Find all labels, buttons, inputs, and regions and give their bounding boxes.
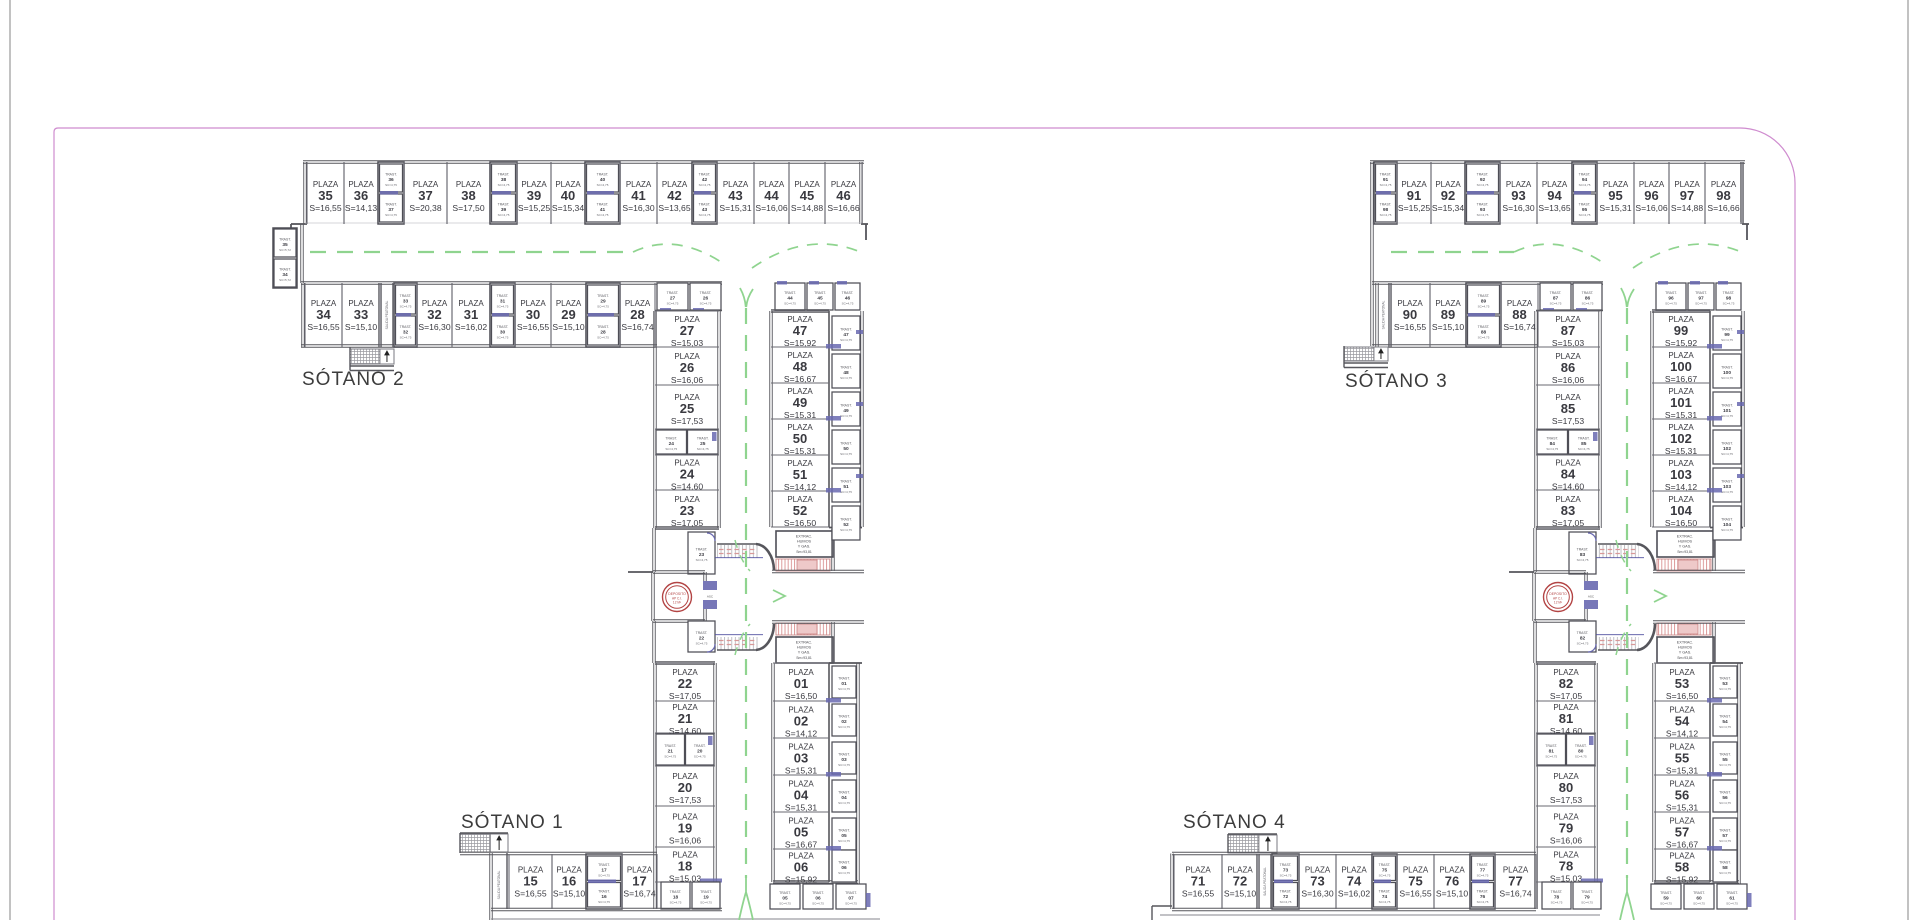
svg-text:76: 76: [1445, 874, 1459, 889]
svg-text:S=14,88: S=14,88: [791, 203, 823, 213]
svg-text:TRAST.: TRAST.: [1579, 203, 1591, 207]
svg-text:SC=4,75: SC=4,75: [840, 338, 852, 342]
svg-text:TRAST.: TRAST.: [598, 889, 610, 893]
svg-text:72: 72: [1233, 874, 1247, 889]
svg-text:S=16,55: S=16,55: [309, 203, 341, 213]
svg-text:SC=4,75: SC=4,75: [696, 642, 708, 646]
svg-text:86: 86: [1561, 360, 1575, 375]
svg-text:SC=5,72: SC=5,72: [279, 278, 291, 282]
svg-text:TRAST.: TRAST.: [694, 744, 706, 748]
svg-text:27: 27: [680, 323, 694, 338]
svg-text:S=15,10: S=15,10: [345, 322, 377, 332]
svg-text:S=16,55: S=16,55: [1394, 322, 1426, 332]
svg-text:SC=4,75: SC=4,75: [1477, 900, 1489, 904]
svg-text:104: 104: [1670, 503, 1692, 518]
svg-text:S=16,55: S=16,55: [1182, 889, 1214, 899]
svg-text:SC=4,75: SC=4,75: [1379, 900, 1391, 904]
svg-text:SC=4,75: SC=4,75: [1380, 213, 1392, 217]
svg-text:SC=4,75: SC=4,75: [598, 873, 610, 877]
svg-text:S=16,02: S=16,02: [455, 322, 487, 332]
svg-text:SC=4,75: SC=4,75: [1577, 642, 1589, 646]
svg-text:SC=4,75: SC=4,75: [779, 902, 791, 906]
svg-text:TRAST.: TRAST.: [699, 203, 711, 207]
svg-text:TRAST.: TRAST.: [1719, 861, 1731, 865]
svg-text:44: 44: [764, 188, 779, 203]
svg-text:SC=4,75: SC=4,75: [1721, 338, 1733, 342]
svg-text:S=15,31: S=15,31: [785, 803, 817, 813]
svg-text:30: 30: [526, 307, 540, 322]
svg-text:S=15,31: S=15,31: [1666, 803, 1698, 813]
svg-text:TRAST.: TRAST.: [1477, 203, 1489, 207]
svg-text:EXTRAC.: EXTRAC.: [1677, 535, 1693, 539]
svg-text:SC=4,75: SC=4,75: [1578, 447, 1590, 451]
svg-text:TRAST.: TRAST.: [667, 291, 679, 295]
svg-text:DEPOSITO: DEPOSITO: [668, 592, 686, 596]
svg-text:TRAST.: TRAST.: [385, 173, 397, 177]
svg-text:04: 04: [794, 788, 809, 803]
svg-text:S=16,30: S=16,30: [622, 203, 654, 213]
svg-text:94: 94: [1547, 188, 1562, 203]
svg-text:TRAST.: TRAST.: [1379, 863, 1391, 867]
svg-text:23: 23: [680, 503, 694, 518]
svg-text:TRAST.: TRAST.: [1478, 294, 1490, 298]
svg-text:S=15,10: S=15,10: [552, 322, 584, 332]
svg-text:S=20,38: S=20,38: [409, 203, 441, 213]
svg-text:SC=4,75: SC=4,75: [1721, 528, 1733, 532]
svg-text:SC=4,75: SC=4,75: [699, 183, 711, 187]
svg-text:SC=4,75: SC=4,75: [840, 528, 852, 532]
svg-text:77: 77: [1508, 874, 1522, 889]
svg-text:ASC: ASC: [707, 595, 714, 599]
svg-text:45: 45: [800, 188, 814, 203]
svg-text:S=15,31: S=15,31: [1599, 203, 1631, 213]
svg-text:S=17,53: S=17,53: [671, 416, 703, 426]
svg-text:24: 24: [680, 467, 695, 482]
svg-text:54: 54: [1675, 714, 1690, 729]
svg-text:17: 17: [632, 874, 646, 889]
svg-text:SC=4,75: SC=4,75: [696, 558, 708, 562]
svg-text:85: 85: [1561, 401, 1575, 416]
svg-text:Y GAS.: Y GAS.: [1679, 651, 1692, 655]
svg-text:SC=4,75: SC=4,75: [838, 763, 850, 767]
svg-text:S=16,67: S=16,67: [785, 840, 817, 850]
svg-text:TRAST.: TRAST.: [840, 366, 852, 370]
svg-text:TRAST.: TRAST.: [838, 829, 850, 833]
svg-text:SC=4,75: SC=4,75: [700, 302, 712, 306]
svg-text:Sm=93,81: Sm=93,81: [1677, 656, 1693, 660]
svg-text:79: 79: [1559, 821, 1573, 836]
svg-text:SC=4,75: SC=4,75: [1719, 839, 1731, 843]
svg-text:SC=4,75: SC=4,75: [1477, 183, 1489, 187]
svg-text:TRAST.: TRAST.: [845, 891, 857, 895]
svg-text:S=16,06: S=16,06: [669, 836, 701, 846]
svg-text:SÓTANO 1: SÓTANO 1: [461, 811, 564, 833]
svg-text:SC=4,75: SC=4,75: [1693, 902, 1705, 906]
svg-text:TRAST.: TRAST.: [1379, 889, 1391, 893]
svg-text:12 M³: 12 M³: [1554, 601, 1562, 605]
svg-text:S=15,25: S=15,25: [518, 203, 550, 213]
svg-text:82: 82: [1559, 676, 1573, 691]
svg-text:S=15,10: S=15,10: [1436, 889, 1468, 899]
svg-text:TRAST.: TRAST.: [597, 173, 609, 177]
svg-text:SC=4,75: SC=4,75: [1719, 725, 1731, 729]
svg-text:TRAST.: TRAST.: [700, 890, 712, 894]
svg-text:06: 06: [794, 860, 808, 875]
svg-text:SC=4,75: SC=4,75: [597, 213, 609, 217]
svg-text:TRAST.: TRAST.: [838, 753, 850, 757]
svg-text:S=16,06: S=16,06: [1552, 375, 1584, 385]
svg-text:S=16,67: S=16,67: [1666, 840, 1698, 850]
svg-text:TRAST.: TRAST.: [279, 238, 291, 242]
svg-text:TRAST.: TRAST.: [597, 325, 609, 329]
svg-text:89: 89: [1441, 307, 1455, 322]
svg-text:EXTRAC.: EXTRAC.: [1677, 641, 1693, 645]
svg-text:90: 90: [1403, 307, 1417, 322]
svg-text:TRAST.: TRAST.: [1721, 480, 1733, 484]
svg-text:SC=4,75: SC=4,75: [1575, 755, 1587, 759]
svg-text:S=17,05: S=17,05: [1550, 691, 1582, 701]
svg-text:43: 43: [728, 188, 742, 203]
svg-text:TRAST.: TRAST.: [1719, 791, 1731, 795]
svg-text:SC=5,72: SC=5,72: [279, 248, 291, 252]
svg-text:S=16,55: S=16,55: [517, 322, 549, 332]
svg-text:SALIDA PEATONAL: SALIDA PEATONAL: [1382, 300, 1386, 329]
svg-text:38: 38: [461, 188, 475, 203]
svg-text:S=16,50: S=16,50: [785, 691, 817, 701]
svg-text:22: 22: [678, 676, 692, 691]
svg-text:02: 02: [794, 714, 808, 729]
svg-text:80: 80: [1559, 780, 1573, 795]
svg-text:93: 93: [1511, 188, 1525, 203]
svg-text:S=15,34: S=15,34: [552, 203, 584, 213]
svg-text:S=16,30: S=16,30: [418, 322, 450, 332]
svg-text:S=15,31: S=15,31: [785, 766, 817, 776]
svg-text:78: 78: [1559, 859, 1573, 874]
svg-text:S=16,06: S=16,06: [1550, 836, 1582, 846]
svg-text:HUMOS: HUMOS: [1678, 646, 1693, 650]
svg-text:TRAST.: TRAST.: [700, 291, 712, 295]
svg-text:S=17,53: S=17,53: [669, 795, 701, 805]
svg-text:SC=4,75: SC=4,75: [1380, 183, 1392, 187]
svg-text:S=15,31: S=15,31: [1666, 766, 1698, 776]
svg-text:S=17,05: S=17,05: [671, 518, 703, 528]
svg-text:SC=4,75: SC=4,75: [1478, 305, 1490, 309]
svg-text:S=16,55: S=16,55: [1399, 889, 1431, 899]
svg-text:TRAST.: TRAST.: [784, 291, 796, 295]
svg-text:S=16,50: S=16,50: [784, 518, 816, 528]
svg-text:SALIDA PEATONAL: SALIDA PEATONAL: [1263, 867, 1267, 896]
svg-text:SC=4,75: SC=4,75: [842, 302, 854, 306]
svg-text:TRAST.: TRAST.: [279, 268, 291, 272]
svg-text:05: 05: [794, 825, 808, 840]
svg-text:87: 87: [1561, 323, 1575, 338]
svg-text:75: 75: [1408, 874, 1422, 889]
svg-text:TRAST.: TRAST.: [779, 891, 791, 895]
svg-text:SC=4,75: SC=4,75: [1477, 213, 1489, 217]
svg-text:S=14,88: S=14,88: [1671, 203, 1703, 213]
svg-text:35: 35: [318, 188, 332, 203]
svg-text:TRAST.: TRAST.: [697, 437, 709, 441]
svg-text:TRAST.: TRAST.: [1721, 518, 1733, 522]
svg-text:SC=4,75: SC=4,75: [838, 687, 850, 691]
svg-text:TRAST.: TRAST.: [1581, 890, 1593, 894]
svg-text:TRAST.: TRAST.: [1478, 325, 1490, 329]
svg-text:SC=4,75: SC=4,75: [667, 302, 679, 306]
svg-text:SC=4,75: SC=4,75: [597, 336, 609, 340]
svg-text:S=16,02: S=16,02: [1338, 889, 1370, 899]
svg-text:TRAST.: TRAST.: [1577, 631, 1589, 635]
svg-text:58: 58: [1675, 860, 1689, 875]
svg-text:SC=4,75: SC=4,75: [597, 305, 609, 309]
svg-text:TRAST.: TRAST.: [598, 863, 610, 867]
svg-text:TRAST.: TRAST.: [1695, 291, 1707, 295]
svg-text:81: 81: [1559, 711, 1573, 726]
svg-text:SC=4,75: SC=4,75: [1721, 414, 1733, 418]
svg-text:TRAST.: TRAST.: [670, 890, 682, 894]
svg-text:SÓTANO 4: SÓTANO 4: [1183, 811, 1286, 833]
svg-text:33: 33: [354, 307, 368, 322]
svg-text:S=16,06: S=16,06: [671, 375, 703, 385]
svg-text:SC=4,75: SC=4,75: [840, 452, 852, 456]
svg-text:Sm=93,81: Sm=93,81: [796, 656, 812, 660]
svg-text:S=16,06: S=16,06: [1635, 203, 1667, 213]
svg-text:SC=4,75: SC=4,75: [1721, 452, 1733, 456]
svg-text:SC=4,75: SC=4,75: [1582, 302, 1594, 306]
svg-text:SC=4,75: SC=4,75: [497, 305, 509, 309]
svg-text:TRAST.: TRAST.: [498, 203, 510, 207]
svg-text:SC=4,75: SC=4,75: [784, 302, 796, 306]
svg-text:SC=4,75: SC=4,75: [497, 336, 509, 340]
svg-text:53: 53: [1675, 676, 1689, 691]
svg-text:TRAST.: TRAST.: [1582, 291, 1594, 295]
svg-text:TRAST.: TRAST.: [1577, 548, 1589, 552]
svg-text:55: 55: [1675, 751, 1689, 766]
svg-text:TRAST.: TRAST.: [597, 203, 609, 207]
svg-text:SC=4,75: SC=4,75: [1280, 900, 1292, 904]
svg-text:SC=4,75: SC=4,75: [385, 183, 397, 187]
svg-text:56: 56: [1675, 788, 1689, 803]
svg-text:TRAST.: TRAST.: [1693, 891, 1705, 895]
svg-text:TRAST.: TRAST.: [1380, 203, 1392, 207]
svg-text:SC=4,75: SC=4,75: [498, 183, 510, 187]
svg-text:36: 36: [354, 188, 368, 203]
svg-text:SC=4,75: SC=4,75: [1660, 902, 1672, 906]
svg-text:88: 88: [1512, 307, 1526, 322]
svg-text:HUMOS: HUMOS: [797, 540, 812, 544]
svg-text:SC=4,75: SC=4,75: [840, 490, 852, 494]
svg-text:S=14,13: S=14,13: [345, 203, 377, 213]
svg-text:TRAST.: TRAST.: [1719, 677, 1731, 681]
svg-text:TRAST.: TRAST.: [812, 891, 824, 895]
svg-text:SC=4,75: SC=4,75: [385, 213, 397, 217]
svg-text:97: 97: [1680, 188, 1694, 203]
svg-text:S=16,66: S=16,66: [1707, 203, 1739, 213]
svg-text:SC=4,75: SC=4,75: [1579, 183, 1591, 187]
svg-text:TRAST.: TRAST.: [498, 173, 510, 177]
svg-text:SC=4,75: SC=4,75: [664, 755, 676, 759]
svg-text:SC=4,75: SC=4,75: [498, 213, 510, 217]
svg-text:73: 73: [1310, 874, 1324, 889]
svg-text:SC=4,75: SC=4,75: [812, 902, 824, 906]
svg-text:S=15,92: S=15,92: [785, 875, 817, 885]
svg-text:TRAST.: TRAST.: [840, 404, 852, 408]
svg-text:S=16,74: S=16,74: [1503, 322, 1535, 332]
svg-text:ASC: ASC: [1588, 595, 1595, 599]
svg-text:SC=4,75: SC=4,75: [1545, 755, 1557, 759]
svg-text:S=16,74: S=16,74: [621, 322, 653, 332]
svg-text:TRAST.: TRAST.: [1726, 891, 1738, 895]
svg-text:TRAST.: TRAST.: [597, 294, 609, 298]
svg-text:SC=4,75: SC=4,75: [697, 447, 709, 451]
svg-text:S=13,65: S=13,65: [1538, 203, 1570, 213]
svg-text:HUMOS: HUMOS: [797, 646, 812, 650]
svg-text:TRAST.: TRAST.: [696, 548, 708, 552]
svg-text:SC=4,75: SC=4,75: [1551, 901, 1563, 905]
svg-text:03: 03: [794, 751, 808, 766]
svg-text:SALIDA PEATONAL: SALIDA PEATONAL: [385, 300, 389, 329]
svg-text:TRAST.: TRAST.: [699, 173, 711, 177]
svg-text:26: 26: [680, 360, 694, 375]
svg-text:TRAST.: TRAST.: [840, 442, 852, 446]
svg-text:TRAST.: TRAST.: [1477, 863, 1489, 867]
svg-text:TRAST.: TRAST.: [497, 294, 509, 298]
svg-text:TRAST.: TRAST.: [1721, 366, 1733, 370]
svg-text:S=15,31: S=15,31: [719, 203, 751, 213]
svg-text:S=15,10: S=15,10: [1224, 889, 1256, 899]
svg-text:TRAST.: TRAST.: [1280, 863, 1292, 867]
svg-text:TRAST.: TRAST.: [1719, 753, 1731, 757]
svg-text:Sm=93,81: Sm=93,81: [796, 550, 812, 554]
svg-text:19: 19: [678, 821, 692, 836]
svg-text:95: 95: [1608, 188, 1622, 203]
svg-text:S=16,50: S=16,50: [1666, 691, 1698, 701]
svg-text:92: 92: [1441, 188, 1455, 203]
svg-text:S=17,05: S=17,05: [669, 691, 701, 701]
svg-text:TRAST.: TRAST.: [838, 861, 850, 865]
svg-text:TRAST.: TRAST.: [1477, 173, 1489, 177]
svg-text:TRAST.: TRAST.: [840, 328, 852, 332]
svg-text:S=16,66: S=16,66: [827, 203, 859, 213]
svg-text:100: 100: [1670, 359, 1692, 374]
svg-text:25: 25: [680, 401, 694, 416]
svg-text:TRAST.: TRAST.: [1546, 437, 1558, 441]
svg-text:SC=4,75: SC=4,75: [1550, 302, 1562, 306]
svg-text:TRAST.: TRAST.: [1575, 744, 1587, 748]
svg-text:EXTRAC.: EXTRAC.: [796, 641, 812, 645]
svg-text:SC=4,75: SC=4,75: [845, 902, 857, 906]
svg-text:TRAST.: TRAST.: [838, 715, 850, 719]
svg-text:TRAST.: TRAST.: [840, 480, 852, 484]
svg-text:18: 18: [678, 859, 692, 874]
svg-text:51: 51: [793, 467, 807, 482]
svg-text:SC=4,75: SC=4,75: [598, 900, 610, 904]
svg-text:TRAST.: TRAST.: [1380, 173, 1392, 177]
svg-text:SC=4,75: SC=4,75: [838, 725, 850, 729]
svg-text:48: 48: [793, 359, 807, 374]
svg-text:39: 39: [527, 188, 541, 203]
svg-text:Y GAS.: Y GAS.: [798, 651, 811, 655]
svg-text:SC=4,75: SC=4,75: [1379, 873, 1391, 877]
svg-text:S=15,34: S=15,34: [1432, 203, 1464, 213]
svg-text:SC=4,75: SC=4,75: [1723, 302, 1735, 306]
svg-text:102: 102: [1670, 431, 1692, 446]
svg-text:101: 101: [1670, 395, 1692, 410]
svg-text:S=14,12: S=14,12: [785, 729, 817, 739]
svg-text:S=16,74: S=16,74: [1499, 889, 1531, 899]
svg-text:EXTRAC.: EXTRAC.: [796, 535, 812, 539]
svg-text:TRAST.: TRAST.: [497, 325, 509, 329]
svg-text:S=16,55: S=16,55: [307, 322, 339, 332]
svg-text:S=16,50: S=16,50: [1665, 518, 1697, 528]
svg-text:49: 49: [793, 395, 807, 410]
svg-text:SC=4,75: SC=4,75: [1719, 687, 1731, 691]
svg-text:SC=4,75: SC=4,75: [700, 901, 712, 905]
svg-text:TRAST.: TRAST.: [1280, 889, 1292, 893]
svg-text:99: 99: [1674, 323, 1688, 338]
svg-text:TRAST.: TRAST.: [1721, 442, 1733, 446]
svg-text:103: 103: [1670, 467, 1692, 482]
svg-text:01: 01: [794, 676, 808, 691]
svg-text:16: 16: [562, 874, 576, 889]
svg-text:SC=4,75: SC=4,75: [699, 213, 711, 217]
svg-text:SC=4,75: SC=4,75: [838, 871, 850, 875]
svg-text:TRAST.: TRAST.: [665, 437, 677, 441]
svg-text:TRAST.: TRAST.: [842, 291, 854, 295]
svg-text:21: 21: [678, 711, 692, 726]
svg-text:TRAST.: TRAST.: [400, 325, 412, 329]
svg-text:S=17,05: S=17,05: [1552, 518, 1584, 528]
svg-text:TRAST.: TRAST.: [385, 203, 397, 207]
svg-text:TRAST.: TRAST.: [1579, 173, 1591, 177]
svg-text:S=16,30: S=16,30: [1502, 203, 1534, 213]
svg-text:S=17,53: S=17,53: [1550, 795, 1582, 805]
svg-text:28: 28: [630, 307, 644, 322]
svg-text:SC=4,75: SC=4,75: [840, 414, 852, 418]
svg-text:TRAST.: TRAST.: [838, 791, 850, 795]
svg-text:TRAST.: TRAST.: [1719, 829, 1731, 833]
svg-text:TRAST.: TRAST.: [1665, 291, 1677, 295]
svg-text:98: 98: [1716, 188, 1730, 203]
svg-text:SC=4,75: SC=4,75: [1581, 901, 1593, 905]
svg-text:SC=4,75: SC=4,75: [1477, 873, 1489, 877]
svg-text:41: 41: [631, 188, 645, 203]
svg-text:TRAST.: TRAST.: [814, 291, 826, 295]
svg-text:S=17,50: S=17,50: [452, 203, 484, 213]
svg-text:TRAST.: TRAST.: [840, 518, 852, 522]
svg-text:S=16,74: S=16,74: [623, 889, 655, 899]
svg-text:47: 47: [793, 323, 807, 338]
svg-text:SC=4,75: SC=4,75: [1579, 213, 1591, 217]
svg-text:74: 74: [1347, 874, 1362, 889]
svg-text:S=14,12: S=14,12: [1666, 729, 1698, 739]
svg-text:SC=4,75: SC=4,75: [814, 302, 826, 306]
svg-text:TRAST.: TRAST.: [1721, 328, 1733, 332]
svg-text:SC=4,75: SC=4,75: [1665, 302, 1677, 306]
svg-text:SC=4,75: SC=4,75: [670, 901, 682, 905]
svg-text:SC=4,75: SC=4,75: [400, 305, 412, 309]
svg-text:S=13,65: S=13,65: [658, 203, 690, 213]
svg-text:SC=4,75: SC=4,75: [838, 801, 850, 805]
svg-text:42: 42: [667, 188, 681, 203]
svg-text:Y GAS.: Y GAS.: [1679, 545, 1692, 549]
svg-text:SALIDA PEATONAL: SALIDA PEATONAL: [497, 870, 501, 899]
svg-text:SC=4,75: SC=4,75: [1719, 763, 1731, 767]
svg-text:84: 84: [1561, 467, 1576, 482]
svg-text:SÓTANO 3: SÓTANO 3: [1345, 370, 1448, 392]
svg-text:DEPOSITO: DEPOSITO: [1549, 592, 1567, 596]
svg-text:31: 31: [464, 307, 478, 322]
svg-text:S=15,25: S=15,25: [1398, 203, 1430, 213]
